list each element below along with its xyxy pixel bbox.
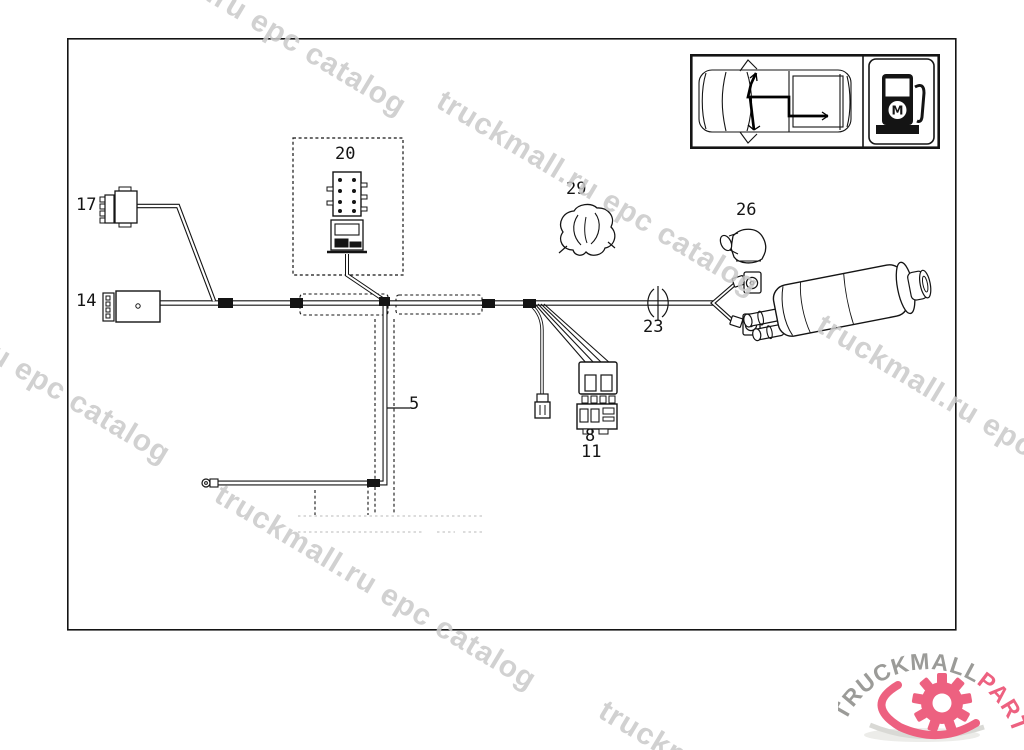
harness-bands <box>218 297 536 487</box>
truckmall-logo: TRUCKMALLPARTS <box>838 645 1024 750</box>
callout-26[interactable]: 26 <box>736 202 756 219</box>
parts-diagram-page: M 17 14 20 29 26 23 5 8 11 truckmall.ru … <box>0 0 1024 750</box>
wire-20 <box>347 254 384 300</box>
harness-clip-29 <box>559 204 615 255</box>
connector-20 <box>327 172 367 216</box>
fuel-pump-icon: M <box>869 59 934 144</box>
small-ring-terminal <box>202 479 218 487</box>
callout-11[interactable]: 11 <box>581 444 601 461</box>
wire-17 <box>137 206 214 301</box>
motor-letter: M <box>892 104 904 118</box>
callout-5[interactable]: 5 <box>409 396 419 413</box>
relay-20 <box>327 220 367 252</box>
relay-assembly-8-11 <box>577 362 617 434</box>
relay-fan-wires <box>535 304 611 364</box>
drop-connector <box>535 394 550 418</box>
callout-23[interactable]: 23 <box>643 319 663 336</box>
connector-14 <box>103 291 160 322</box>
callout-29[interactable]: 29 <box>566 181 586 198</box>
callout-20[interactable]: 20 <box>335 146 355 163</box>
callout-14[interactable]: 14 <box>76 293 96 310</box>
fuel-pump-unit <box>739 258 935 345</box>
connector-17 <box>100 187 137 227</box>
location-inset: M <box>690 54 940 149</box>
wire-5 <box>211 303 385 483</box>
elbow-boot-26 <box>718 229 766 263</box>
ghost-harness-lines <box>298 516 483 532</box>
ring-terminal-upper <box>732 272 761 293</box>
callout-17[interactable]: 17 <box>76 197 96 214</box>
